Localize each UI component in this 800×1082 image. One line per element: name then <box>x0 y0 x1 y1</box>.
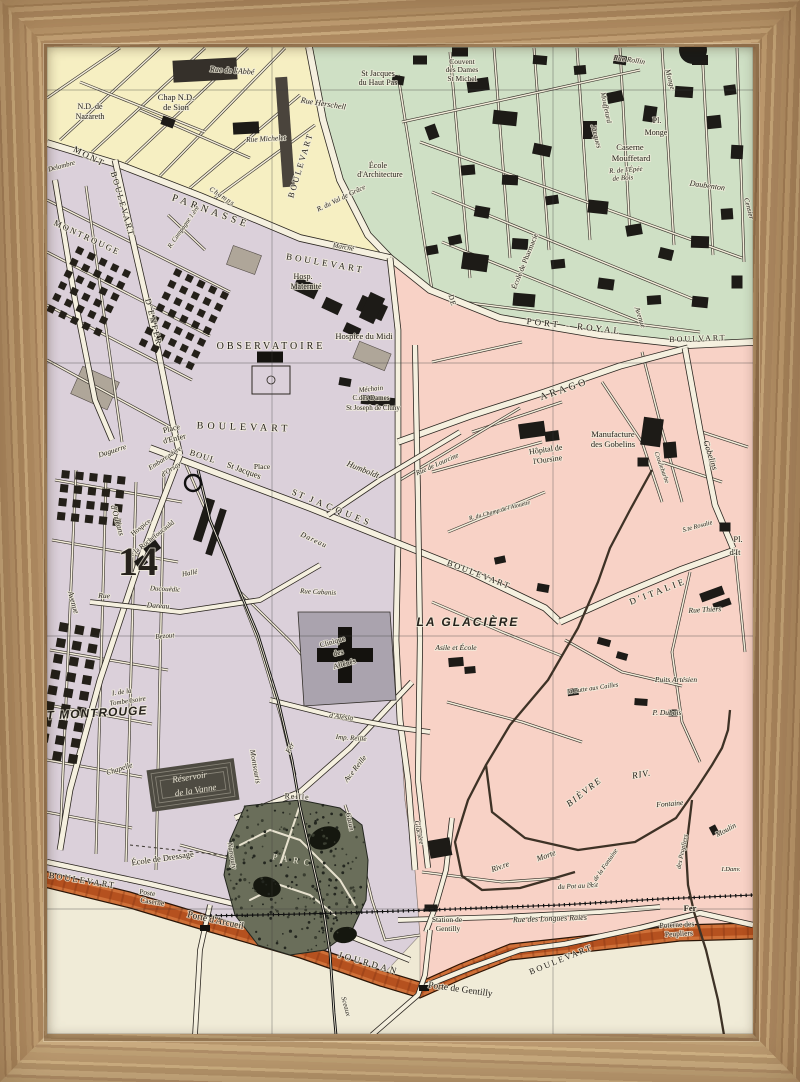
building-block <box>448 657 464 667</box>
building-block <box>461 164 476 175</box>
building-block <box>233 121 260 134</box>
map-label: des Gobelins <box>591 439 635 449</box>
map-label: Nazareth <box>76 112 105 121</box>
building-block <box>533 55 548 65</box>
map-label: Dareau <box>146 600 170 610</box>
map-label: Chap N.D. <box>158 92 195 102</box>
building-block <box>428 837 453 859</box>
map-label: Station de <box>432 915 463 924</box>
building-block <box>452 48 468 57</box>
building-block <box>721 208 734 220</box>
building-block <box>587 199 608 214</box>
map-label: de Bois <box>612 173 634 182</box>
building-block <box>574 65 587 75</box>
paris-map-canvas: Rue de l'AbbéChap N.D.de SionN.D. deNaza… <box>0 0 800 1082</box>
place-marker <box>679 36 707 64</box>
map-label: Fer <box>684 903 697 913</box>
map-label: Puits Artésien <box>654 675 697 684</box>
building-block <box>706 115 721 129</box>
map-label: I.Danv. <box>720 866 740 873</box>
map-label: Rue Thiers <box>687 604 721 615</box>
building-block <box>492 110 517 126</box>
map-label: des Dames <box>446 65 479 74</box>
building-block <box>544 430 559 442</box>
map-label: Ducouëdic <box>149 584 182 594</box>
map-label: St Michel <box>447 74 476 83</box>
map-label: St Jacques <box>361 69 395 78</box>
building-block <box>732 276 743 289</box>
map-label: Mouffetard <box>612 153 651 163</box>
building-block <box>545 195 559 206</box>
building-block <box>731 145 744 160</box>
map-label: OBSERVATOIRE <box>217 341 326 352</box>
map-label: Gentilly <box>436 924 461 933</box>
building-block <box>691 296 708 309</box>
building-block <box>464 666 476 674</box>
map-label: École <box>369 160 388 170</box>
map-label: Pl. <box>733 534 742 544</box>
map-label: Reille <box>284 791 310 801</box>
map-label: C.des Dames <box>353 394 390 402</box>
building-block <box>647 295 662 305</box>
observatoire-building <box>257 352 283 363</box>
map-label: Hosp. <box>294 272 313 281</box>
map-label: LA GLACIÈRE <box>417 614 520 629</box>
map-label: de Sion <box>163 102 189 112</box>
map-label: du Haut Pas <box>359 78 398 87</box>
map-label: Pl. <box>653 116 662 125</box>
building-block <box>634 698 647 706</box>
map-label: Caserne <box>616 142 644 152</box>
framed-map-print: Rue de l'AbbéChap N.D.de SionN.D. deNaza… <box>0 0 800 1082</box>
building-block <box>638 458 649 467</box>
map-label: St Joseph de Cluny <box>346 404 400 412</box>
building-block <box>691 236 709 249</box>
map-label: d'Architecture <box>357 170 403 179</box>
map-label: Manufacture <box>591 429 635 439</box>
map-label: N.D. de <box>77 102 103 111</box>
building-block <box>502 175 519 186</box>
map-label: P. Dubois <box>651 708 681 717</box>
building-block <box>720 523 731 532</box>
building-block <box>461 252 489 272</box>
map-label: 14 <box>118 539 158 584</box>
map-label: Monge <box>645 128 668 137</box>
map-label: Place <box>254 462 271 471</box>
map-label: Maternité <box>290 282 322 291</box>
map-label: Hospice du Midi <box>335 331 393 341</box>
map-label: Asile et École <box>434 642 477 652</box>
map-label: Peupliers <box>665 928 693 938</box>
map-label: d'It <box>730 547 742 557</box>
building-block <box>663 441 677 458</box>
building-block <box>413 56 427 65</box>
map-label: Rue <box>97 591 111 601</box>
building-block <box>640 417 664 448</box>
building-block <box>512 293 535 308</box>
building-block <box>597 277 614 290</box>
